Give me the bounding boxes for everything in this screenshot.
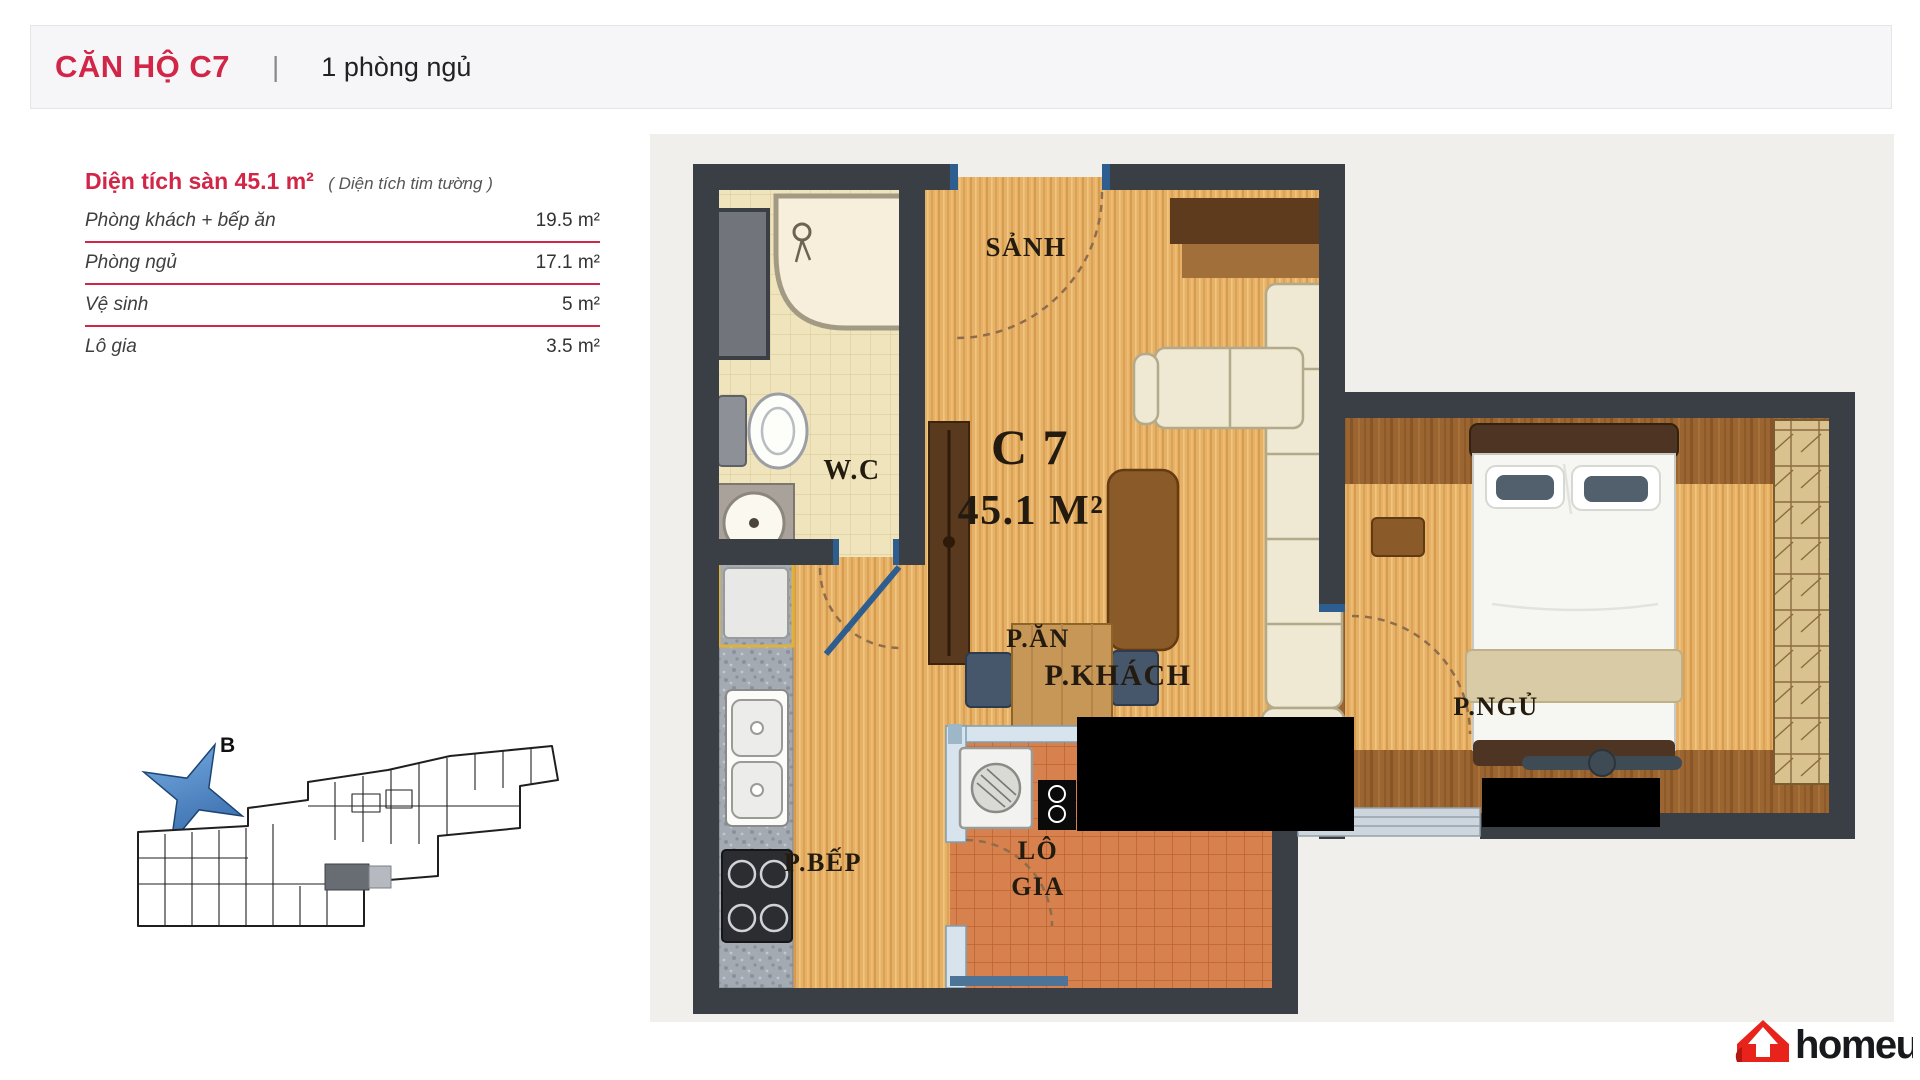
apartment-detail-page: CĂN HỘ C7 | 1 phòng ngủ Diện tích sàn 45…	[0, 0, 1920, 1080]
floor-plan-image: SẢNH W.C C 7 45.1 M² P.KHÁCH P.ĂN LÔ GIA…	[650, 134, 1894, 1022]
row-value: 3.5 m²	[546, 336, 600, 358]
wc-label: W.C	[823, 455, 880, 486]
area-table-heading: Diện tích sàn 45.1 m² ( Diện tích tim tư…	[85, 168, 600, 195]
row-value: 19.5 m²	[536, 210, 600, 232]
nightstand	[1372, 518, 1424, 556]
header-bar: CĂN HỘ C7 | 1 phòng ngủ	[30, 25, 1892, 109]
balcony-label-line2: GIA	[1011, 872, 1065, 901]
row-label: Vệ sinh	[85, 294, 148, 316]
area-table: Diện tích sàn 45.1 m² ( Diện tích tim tư…	[85, 168, 600, 367]
washing-machine	[960, 748, 1032, 828]
title-divider: |	[272, 51, 279, 83]
censored-block	[1482, 778, 1660, 827]
highlighted-unit-c7	[325, 864, 369, 890]
floor-plan-svg: SẢNH W.C C 7 45.1 M² P.KHÁCH P.ĂN LÔ GIA…	[650, 134, 1894, 1022]
table-row: Phòng khách + bếp ăn 19.5 m²	[85, 201, 600, 243]
row-label: Lô gia	[85, 336, 137, 358]
row-label: Phòng ngủ	[85, 252, 177, 274]
balcony-label-line1: LÔ	[1018, 836, 1059, 865]
page-title: CĂN HỘ C7	[55, 49, 230, 85]
balcony-sill	[950, 976, 1068, 986]
bedroom-count-subtitle: 1 phòng ngủ	[321, 52, 471, 83]
row-value: 17.1 m²	[536, 252, 600, 274]
building-key-plan: B	[100, 728, 570, 938]
dining-chair	[966, 653, 1012, 707]
row-label: Phòng khách + bếp ăn	[85, 210, 276, 232]
kitchen-counter	[719, 560, 793, 988]
homeup-logo[interactable]: homeup	[1733, 1014, 1913, 1066]
key-plan-svg: B	[100, 728, 570, 938]
hall-label: SẢNH	[985, 232, 1066, 262]
unit-code-label: C 7	[991, 419, 1069, 475]
fridge	[724, 568, 788, 638]
table-row: Lô gia 3.5 m²	[85, 327, 600, 367]
row-value: 5 m²	[562, 294, 600, 316]
floor-area-note: ( Diện tích tim tường )	[328, 174, 493, 193]
homeup-logo-svg: homeup	[1733, 1014, 1913, 1066]
logo-text: homeup	[1795, 1023, 1913, 1066]
shaft	[712, 210, 768, 358]
coffee-table	[1108, 470, 1178, 650]
hall-cabinet	[929, 422, 969, 664]
cooktop	[722, 850, 792, 942]
balcony-stove	[1038, 780, 1076, 830]
house-up-arrow-icon	[1736, 1020, 1789, 1062]
unit-area-label: 45.1 M²	[958, 488, 1105, 534]
toilet	[718, 394, 807, 468]
tv-cabinet	[1170, 198, 1319, 278]
shower	[776, 196, 906, 328]
dining-label: P.ĂN	[1006, 624, 1070, 653]
table-row: Phòng ngủ 17.1 m²	[85, 243, 600, 285]
bedroom-label: P.NGỦ	[1453, 692, 1538, 721]
compass-label: B	[220, 734, 235, 757]
censored-block	[1077, 717, 1354, 831]
kitchen-sink	[726, 690, 788, 826]
table-row: Vệ sinh 5 m²	[85, 285, 600, 327]
wardrobe	[1774, 420, 1830, 784]
kitchen-label: P.BẾP	[784, 848, 862, 877]
living-label: P.KHÁCH	[1045, 659, 1192, 692]
floor-area-heading: Diện tích sàn 45.1 m²	[85, 168, 314, 194]
